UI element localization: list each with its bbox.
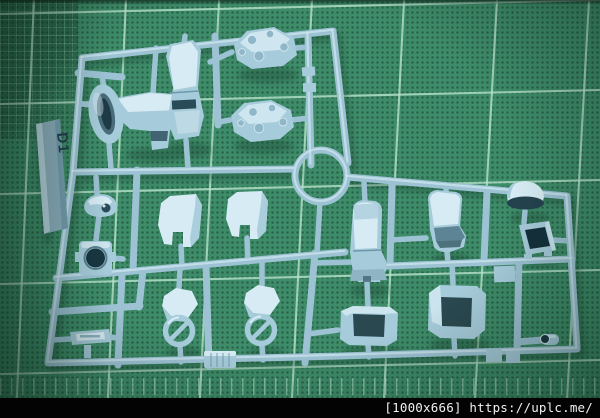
part-shield-left [158, 194, 202, 247]
sprue-photo-svg: D1 [0, 0, 600, 418]
part-head-joint [84, 194, 117, 217]
mat-edge-ruler-ticks [0, 378, 600, 395]
part-u-channel-left [340, 306, 398, 346]
caption-bar: [1000x666] https://uplc.me/ [0, 398, 600, 418]
part-small-cylinder [541, 334, 560, 345]
part-dome-lower [231, 100, 294, 142]
runner-tag-bar: D1 [36, 119, 72, 234]
part-waist-armor [428, 190, 466, 252]
part-u-channel-right [428, 285, 486, 339]
part-open-box [519, 221, 556, 259]
part-shoulder-left [162, 288, 198, 345]
part-shield-right [226, 191, 268, 239]
mat-top-edge-shadow [0, 0, 600, 5]
part-leg-armor [166, 40, 204, 140]
part-flat-plate [70, 329, 111, 358]
part-dome-cap [507, 181, 544, 210]
part-square-frame [75, 241, 116, 275]
runner-label-text: D1 [53, 132, 72, 155]
part-ribbed-block [204, 351, 236, 368]
photo-of-model-kit-sprue: D1 [0, 0, 600, 418]
watermark-text: [1000x666] https://uplc.me/ [384, 398, 600, 418]
part-shoulder-right [244, 285, 280, 344]
